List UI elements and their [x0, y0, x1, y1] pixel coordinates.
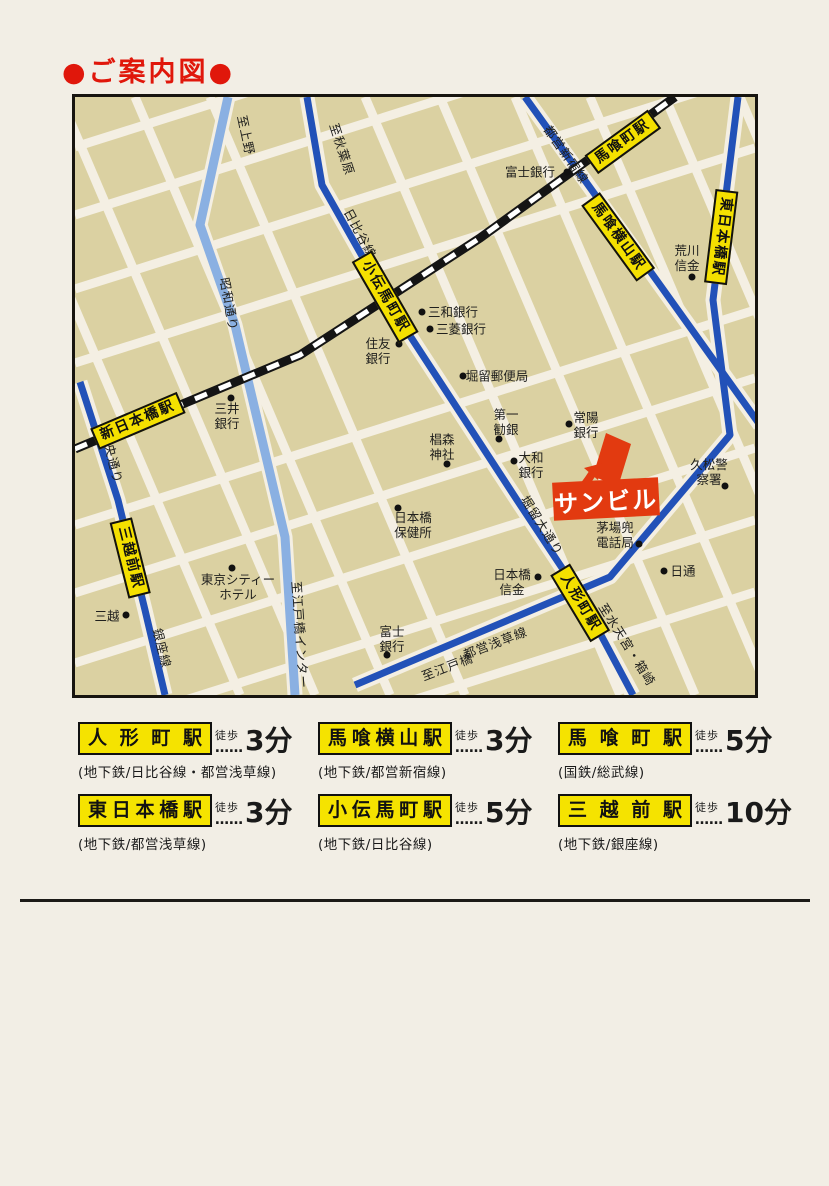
- map-station-ningyocho: 人形町駅: [550, 564, 610, 643]
- legend-cell-bakuro-yokoyama: 馬喰横山駅 徒歩 …… 3分 (地下鉄/都営新宿線): [318, 722, 563, 781]
- map-station-higashi-nihombashi: 東日本橋駅: [704, 189, 739, 285]
- walk-time: 3分: [245, 728, 292, 755]
- map-place-hisamatsu-police: 久松警察署: [686, 457, 732, 487]
- walk-time: 5分: [725, 728, 772, 755]
- map-dot-tokyo-city-hotel: [229, 565, 236, 572]
- walk-leader: ……: [455, 741, 483, 755]
- map-place-mitsubishi-bank: 三菱銀行: [436, 322, 486, 337]
- walk-unit: 徒歩 ……: [215, 802, 243, 827]
- map-label-showa-dori: 昭和通り: [216, 276, 244, 332]
- map-dot-arakawa-shinkin: [689, 274, 696, 281]
- page-title: ●ご案内図●: [62, 50, 235, 89]
- station-lines: (地下鉄/都営浅草線): [78, 833, 323, 853]
- map-place-daiichi-kangin: 第一 勧銀: [493, 407, 518, 437]
- station-name-box: 東日本橋駅: [78, 794, 212, 827]
- sun-building-label: サンビル: [552, 477, 660, 520]
- legend-cell-ningyocho: 人形町駅 徒歩 …… 3分 (地下鉄/日比谷線・都営浅草線): [78, 722, 323, 781]
- map-place-fuji-bank-top: 富士銀行: [505, 165, 555, 180]
- legend-cell-bakurocho: 馬喰町駅 徒歩 …… 5分 (国鉄/総武線): [558, 722, 803, 781]
- map-label-ginza-line: 銀座線: [149, 626, 177, 670]
- station-lines: (地下鉄/日比谷線・都営浅草線): [78, 761, 323, 781]
- map-dot-nittsu: [661, 568, 668, 575]
- map-label-to-edobashi-inter: 至江戸橋インター: [288, 580, 314, 689]
- walk-time: 3分: [245, 800, 292, 827]
- walk-unit: 徒歩 ……: [695, 802, 723, 827]
- map-place-sumitomo-bank: 住友 銀行: [365, 336, 390, 366]
- station-name-box: 馬喰町駅: [558, 722, 692, 755]
- map-place-nihombashi-health: 日本橋 保健所: [394, 510, 432, 540]
- walk-time: 5分: [485, 800, 532, 827]
- map-dot-mitsubishi-bank: [427, 326, 434, 333]
- map-place-arakawa-shinkin: 荒川 信金: [674, 243, 699, 273]
- station-name-box: 人形町駅: [78, 722, 212, 755]
- map-label-hibiya-line: 日比谷線: [340, 205, 382, 262]
- legend-cell-higashi-nihombashi: 東日本橋駅 徒歩 …… 3分 (地下鉄/都営浅草線): [78, 794, 323, 853]
- map-station-shin-nihombashi: 新日本橋駅: [90, 392, 186, 450]
- map-dot-mitsukoshi: [123, 612, 130, 619]
- map-place-tokyo-city-hotel: 東京シティー ホテル: [201, 572, 275, 602]
- walk-unit: 徒歩 ……: [215, 730, 243, 755]
- map-place-suginomori-shrine: 椙森 神社: [429, 432, 454, 462]
- station-lines: (地下鉄/銀座線): [558, 833, 803, 853]
- map-place-mitsukoshi: 三越: [94, 609, 119, 624]
- legend-cell-mitsukoshimae: 三越前駅 徒歩 …… 10分 (地下鉄/銀座線): [558, 794, 803, 853]
- map-label-toei-asakusa-line: 都営浅草線: [460, 621, 530, 663]
- map-dot-sanwa-bank: [419, 309, 426, 316]
- map-label-to-suitengu-hakozaki: 至水天宮・箱崎: [595, 599, 661, 689]
- legend-cell-kodemmacho: 小伝馬町駅 徒歩 …… 5分 (地下鉄/日比谷線): [318, 794, 563, 853]
- station-lines: (地下鉄/都営新宿線): [318, 761, 563, 781]
- station-name-box: 三越前駅: [558, 794, 692, 827]
- map-station-bakurocho: 馬喰町駅: [585, 110, 662, 175]
- section-divider: [20, 899, 810, 902]
- map-dot-daiwa-bank: [511, 458, 518, 465]
- map-label-to-ueno: 至上野: [233, 113, 260, 157]
- walk-unit: 徒歩 ……: [455, 802, 483, 827]
- map-place-fuji-bank-bottom: 富士 銀行: [379, 624, 404, 654]
- map-place-nittsu: 日通: [670, 564, 695, 579]
- walk-leader: ……: [455, 813, 483, 827]
- map-dot-kayaba-kabuto: [636, 541, 643, 548]
- guide-map: 至上野至秋葉原日比谷線都営新宿線昭和通り中央通り銀座線至江戸橋インター堀留大通り…: [72, 94, 758, 698]
- walk-time: 3分: [485, 728, 532, 755]
- map-station-mitsukoshimae: 三越前駅: [109, 517, 151, 598]
- station-lines: (地下鉄/日比谷線): [318, 833, 563, 853]
- map-label-to-akihabara: 至秋葉原: [326, 120, 361, 177]
- map-place-kayaba-kabuto-tel: 茅場兜 電話局: [596, 520, 634, 550]
- map-place-mitsui-bank: 三井 銀行: [214, 401, 239, 431]
- station-lines: (国鉄/総武線): [558, 761, 803, 781]
- walk-leader: ……: [215, 741, 243, 755]
- map-dot-nihombashi-shinkin: [535, 574, 542, 581]
- map-place-joyo-bank: 常陽 銀行: [573, 410, 598, 440]
- walk-leader: ……: [215, 813, 243, 827]
- walk-time: 10分: [725, 800, 792, 827]
- map-dot-joyo-bank: [566, 421, 573, 428]
- map-place-daiwa-bank: 大和 銀行: [518, 450, 543, 480]
- map-place-horidome-post-office: 堀留郵便局: [466, 369, 529, 384]
- station-name-box: 馬喰横山駅: [318, 722, 452, 755]
- station-name-box: 小伝馬町駅: [318, 794, 452, 827]
- map-place-nihombashi-shinkin: 日本橋 信金: [493, 567, 531, 597]
- walk-unit: 徒歩 ……: [695, 730, 723, 755]
- walk-leader: ……: [695, 741, 723, 755]
- map-station-kodemmacho: 小伝馬町駅: [351, 250, 418, 343]
- map-overlay-layer: 至上野至秋葉原日比谷線都営新宿線昭和通り中央通り銀座線至江戸橋インター堀留大通り…: [75, 97, 755, 695]
- walk-leader: ……: [695, 813, 723, 827]
- map-station-bakuro-yokoyama: 馬喰横山駅: [581, 192, 655, 282]
- walk-unit: 徒歩 ……: [455, 730, 483, 755]
- map-place-sanwa-bank: 三和銀行: [428, 305, 478, 320]
